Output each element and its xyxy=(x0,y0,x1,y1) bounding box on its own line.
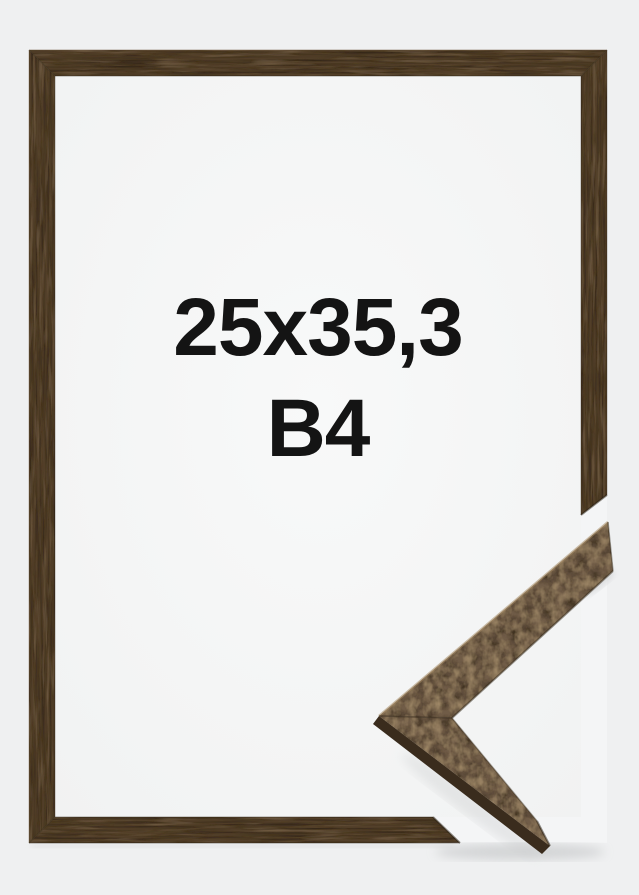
frame-top-rail xyxy=(29,50,607,76)
format-label: B4 xyxy=(29,378,607,479)
size-label: 25x35,3 xyxy=(29,277,607,378)
frame-bottom-rail xyxy=(29,817,460,843)
frame-product-image: 25x35,3 B4 xyxy=(0,0,639,895)
frame-shadow xyxy=(31,844,455,848)
size-label-block: 25x35,3 B4 xyxy=(29,277,607,479)
